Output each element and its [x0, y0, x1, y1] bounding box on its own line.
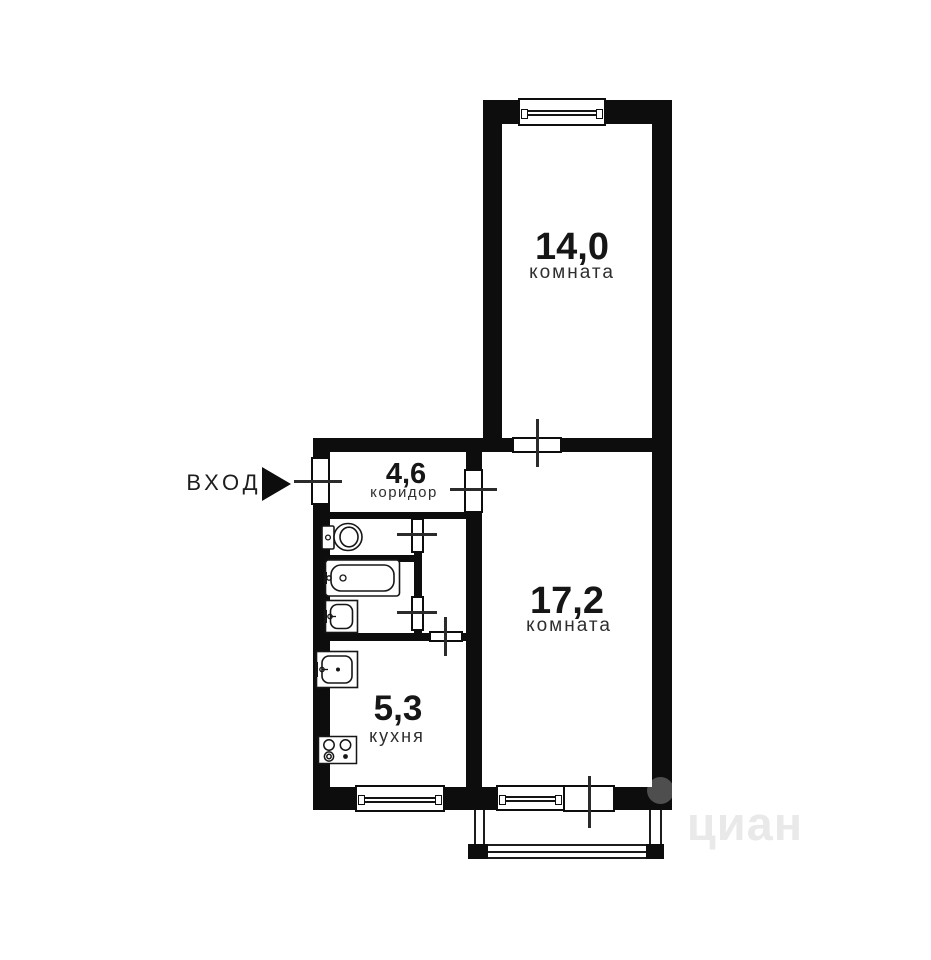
window-room1 — [518, 98, 606, 126]
watermark-logo-icon — [647, 777, 674, 804]
wall-segment — [313, 512, 466, 519]
window-end-tab — [596, 109, 603, 119]
window-end-tab — [358, 795, 365, 805]
window-room2 — [496, 785, 565, 811]
wall-segment — [560, 438, 652, 452]
door-kitchen-swing-line — [444, 617, 447, 656]
room2-type-label: комната — [469, 616, 669, 635]
balcony-corner-post — [468, 844, 488, 859]
wall-segment — [313, 438, 330, 459]
door-balcony-swing-line — [588, 776, 591, 828]
door-wc — [411, 518, 424, 553]
door-bathroom-swing-line — [397, 611, 437, 614]
window-end-tab — [521, 109, 528, 119]
balcony-rail-right — [649, 810, 662, 846]
window-end-tab — [555, 795, 562, 805]
window-end-tab — [435, 795, 442, 805]
window-end-tab — [499, 795, 506, 805]
door-wc-swing-line — [397, 533, 437, 536]
wall-segment — [313, 438, 514, 452]
window-kitchen — [355, 785, 445, 812]
balcony-rail-bottom — [474, 844, 662, 859]
wall-segment — [313, 787, 357, 810]
toilet-icon — [320, 521, 364, 553]
door-bathroom — [411, 596, 424, 631]
balcony-rail-left — [474, 810, 485, 846]
window-sash — [525, 110, 599, 116]
balcony-corner-post — [646, 844, 664, 859]
door-room1-room2-swing-line — [536, 419, 539, 467]
wall-segment — [466, 511, 482, 787]
floor-plan: ВХОД 14,0 комната 17,2 комната 4,6 корид… — [0, 0, 931, 960]
wall-segment — [652, 100, 672, 808]
wall-segment — [443, 787, 498, 810]
room1-area-label: 14,0 — [472, 228, 672, 266]
window-sash — [503, 796, 558, 802]
entrance-arrow-icon — [262, 467, 291, 501]
kitchen-area-label: 5,3 — [298, 691, 498, 726]
room1-type-label: комната — [472, 263, 672, 282]
kitchen-sink-icon — [315, 650, 359, 689]
window-sash — [362, 797, 438, 803]
kitchen-type-label: кухня — [297, 727, 497, 745]
corridor-type-label: коридор — [304, 485, 504, 500]
bath-sink-icon — [324, 599, 359, 634]
bathtub-icon — [324, 558, 401, 598]
